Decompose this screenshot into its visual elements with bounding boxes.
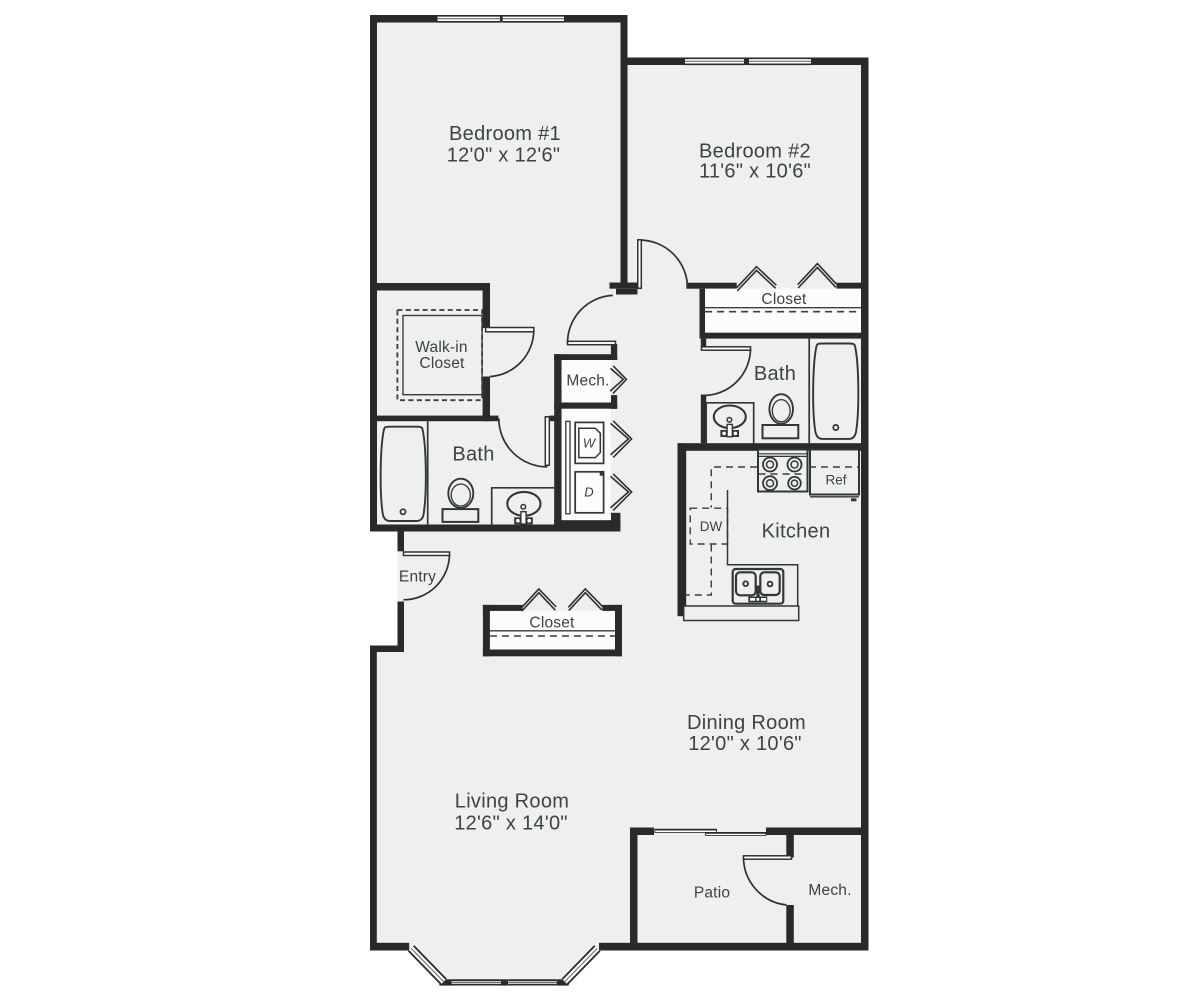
svg-text:12'0" x 10'6": 12'0" x 10'6" (688, 733, 802, 755)
svg-text:DW: DW (700, 519, 723, 534)
svg-text:Bedroom #2: Bedroom #2 (699, 141, 811, 163)
svg-text:11'6" x 10'6": 11'6" x 10'6" (699, 161, 811, 183)
svg-text:Mech.: Mech. (808, 882, 851, 899)
svg-text:Kitchen: Kitchen (762, 521, 831, 543)
svg-text:D: D (584, 485, 593, 500)
svg-text:Bedroom #1: Bedroom #1 (449, 123, 561, 145)
svg-text:Living Room: Living Room (455, 790, 569, 812)
svg-text:Bath: Bath (452, 444, 494, 466)
svg-text:W: W (583, 436, 597, 451)
svg-text:Ref: Ref (825, 473, 846, 488)
svg-text:Dining Room: Dining Room (687, 712, 806, 734)
svg-text:Mech.: Mech. (566, 373, 609, 390)
svg-text:Patio: Patio (694, 885, 730, 902)
svg-text:Entry: Entry (399, 569, 436, 586)
svg-text:Closet: Closet (529, 615, 575, 632)
svg-text:Walk-in: Walk-in (415, 339, 468, 356)
svg-text:Bath: Bath (754, 363, 796, 385)
svg-text:Closet: Closet (761, 291, 807, 308)
svg-text:Closet: Closet (419, 355, 465, 372)
svg-text:12'6" x 14'0": 12'6" x 14'0" (454, 813, 568, 835)
svg-text:12'0" x 12'6": 12'0" x 12'6" (447, 145, 561, 167)
